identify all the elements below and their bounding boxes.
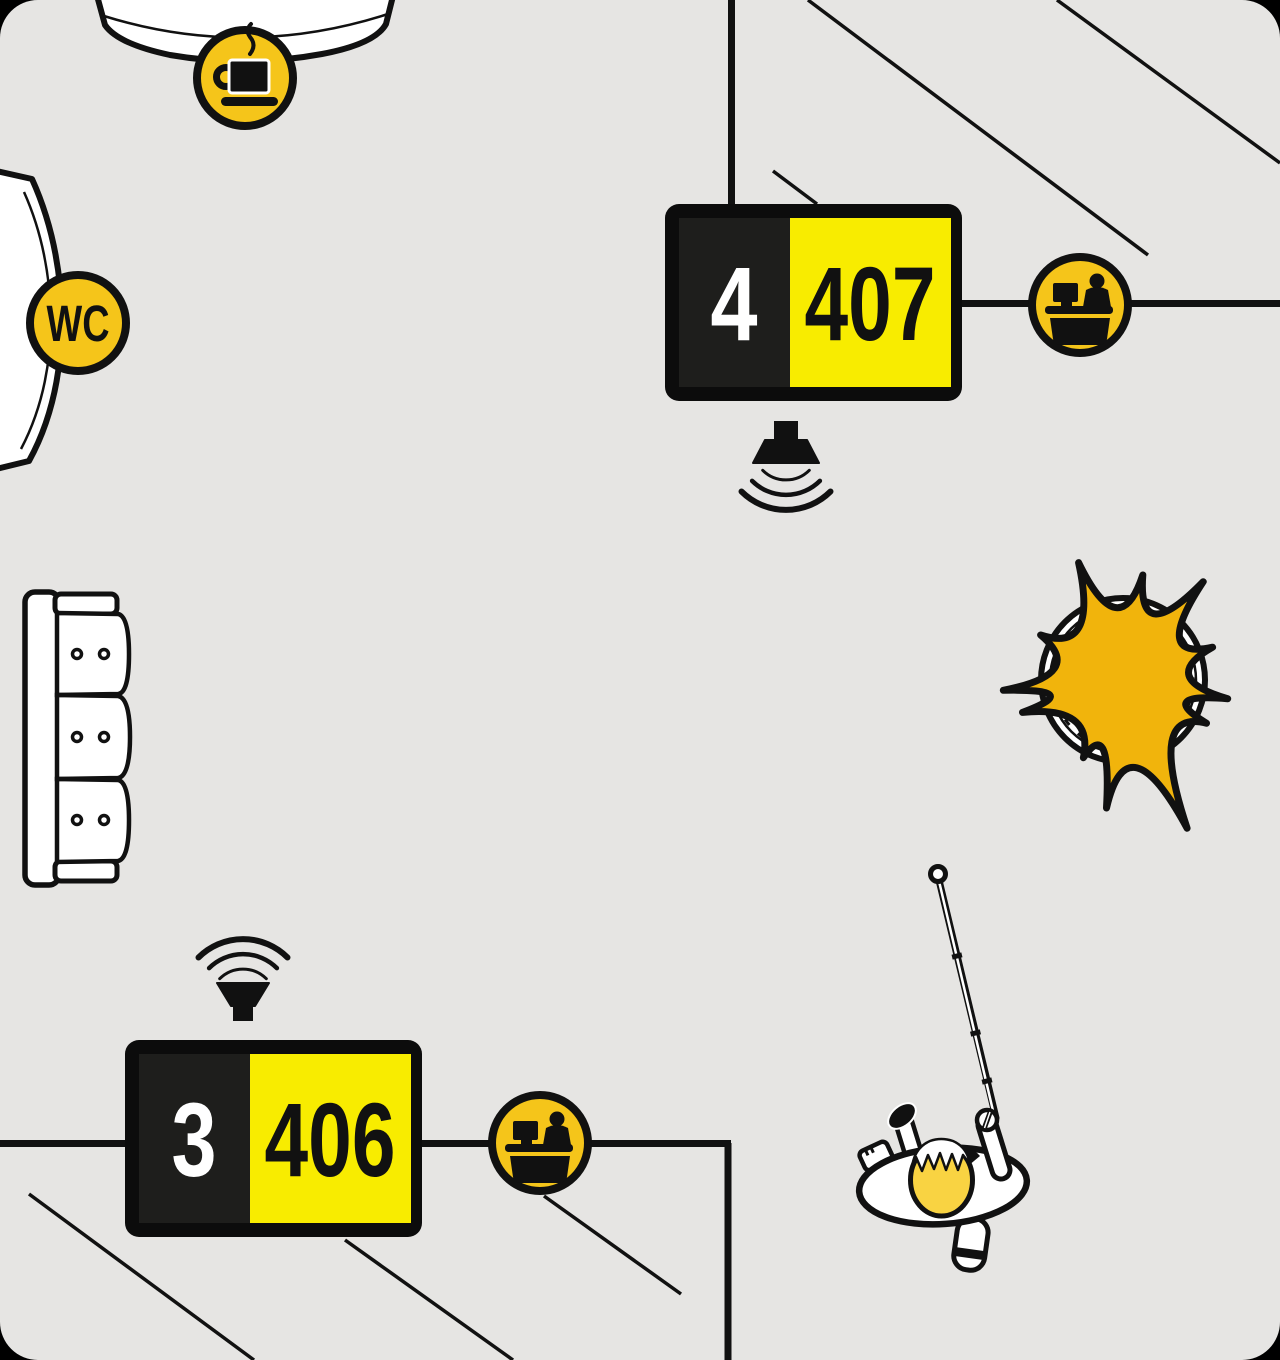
queue-number: 4 [711,246,758,363]
floor-plan-canvas: WC 4 407 [0,0,1280,1360]
sofa [25,592,130,885]
queue-number: 3 [172,1082,217,1199]
room-number: 407 [805,246,936,363]
coffee-badge[interactable] [197,24,293,126]
wc-badge[interactable]: WC [30,275,126,371]
room-number: 406 [265,1082,396,1199]
floor-plan-frame: WC 4 407 [0,0,1280,1360]
cane-tip-ball [931,867,946,882]
wc-badge-label: WC [47,295,110,352]
reception-desk-badge-bottom[interactable] [492,1095,588,1191]
reception-desk-badge-top[interactable] [1032,257,1128,353]
